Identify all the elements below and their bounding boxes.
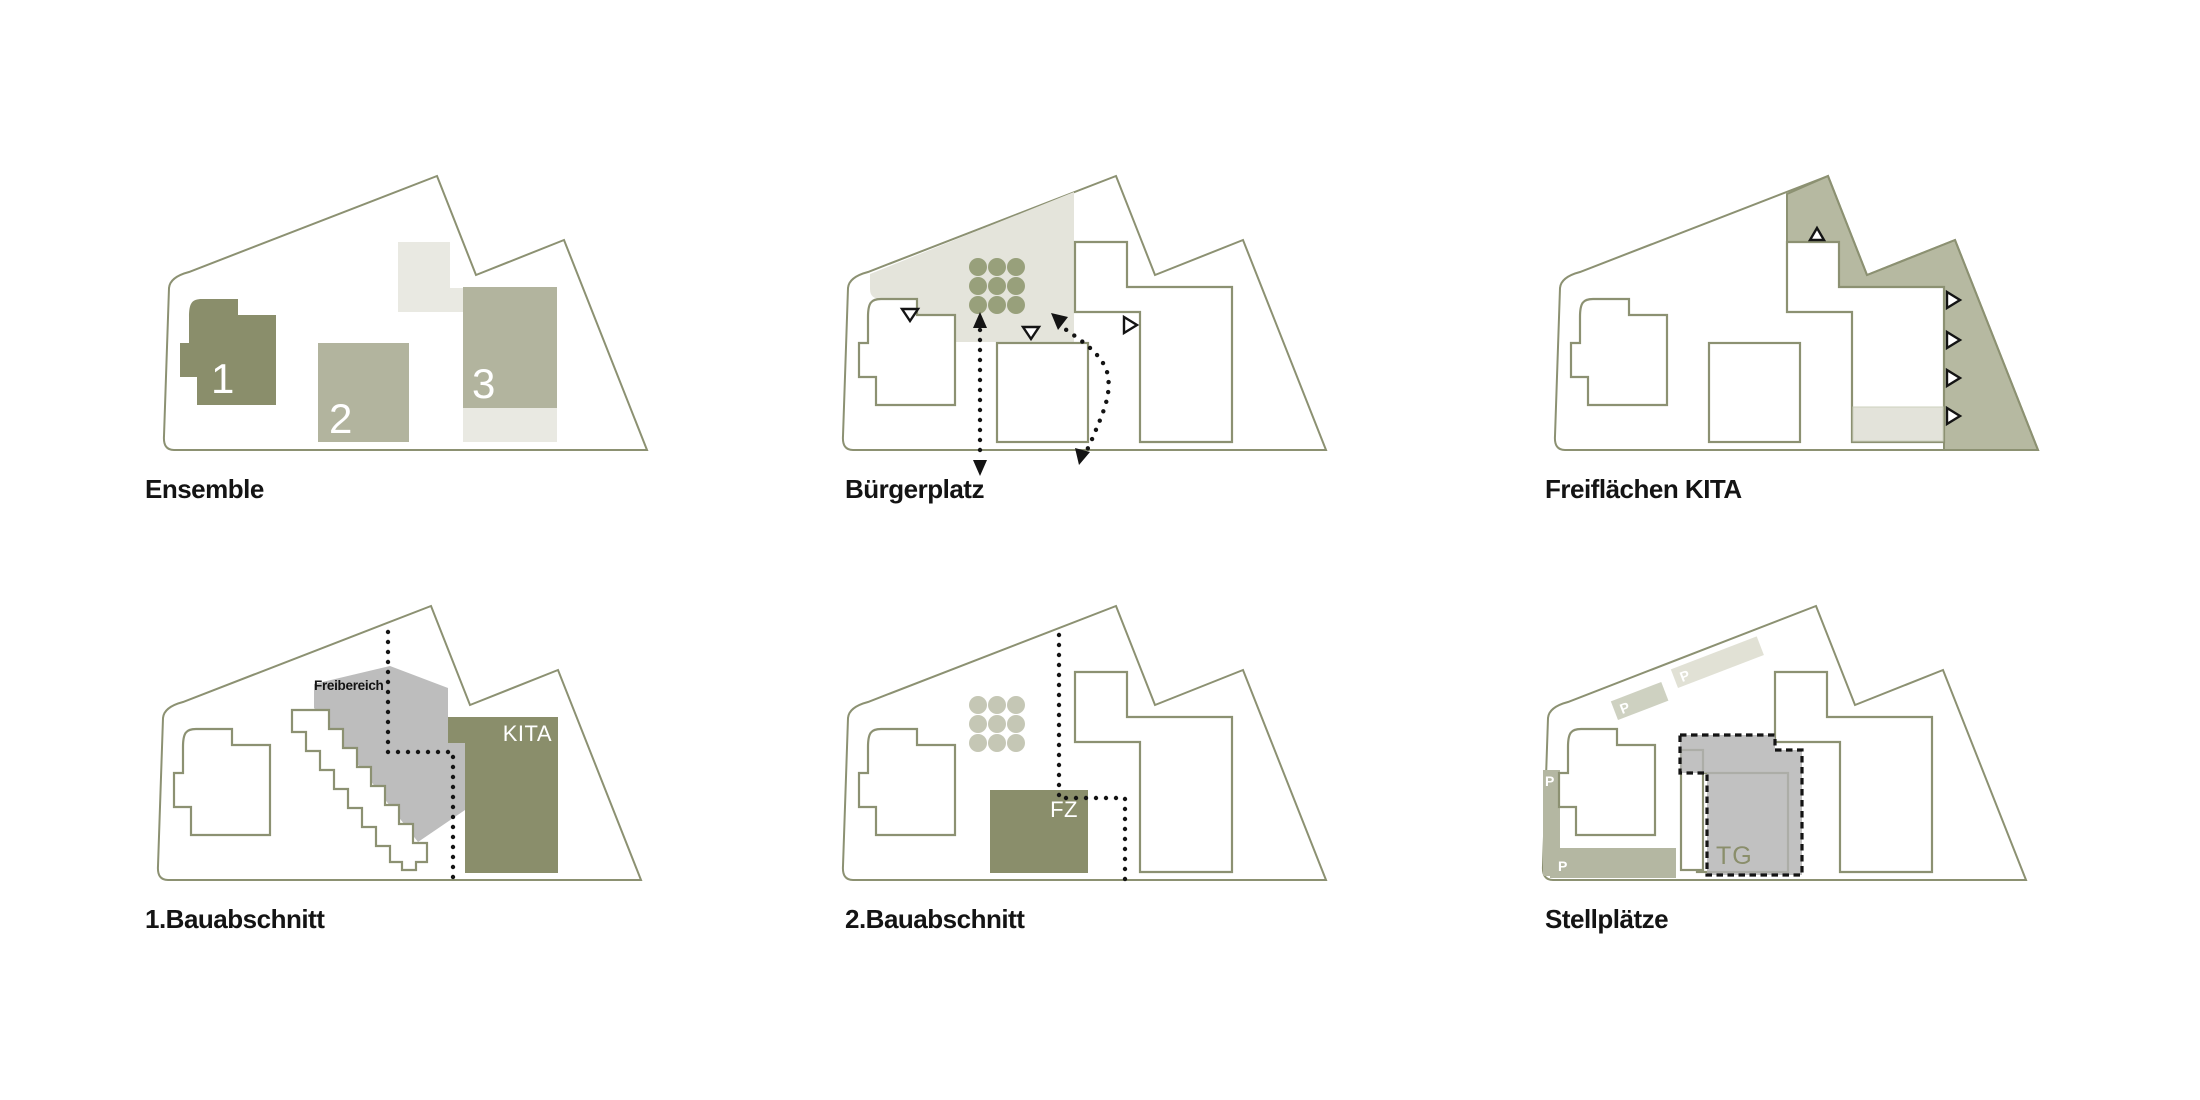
freibereich-label: Freibereich — [314, 678, 384, 693]
diagram-freiflaechen-kita: Freiflächen KITA — [1520, 150, 2140, 530]
light-gray-block-upper — [398, 242, 463, 312]
building-2-outline — [997, 343, 1088, 442]
page-background: 1 2 3 Ensemble Bürgerplatz Freiflächen K… — [0, 0, 2200, 1100]
diagram-stellplaetze: P P P P TG Stellplätze — [1520, 580, 2140, 960]
kita-building-label: KITA — [503, 721, 552, 746]
diagram-title-stellplaetze: Stellplätze — [1545, 904, 1668, 934]
diagram-ensemble: 1 2 3 Ensemble — [120, 150, 740, 530]
building-1-number: 1 — [211, 355, 233, 402]
light-gray-block-lower — [463, 408, 557, 442]
tree-grid — [969, 258, 1025, 314]
building-2-outline — [1709, 343, 1800, 442]
building-2-number: 2 — [329, 395, 351, 442]
building-1-outline — [859, 729, 955, 835]
diagram-buergerplatz: Bürgerplatz — [820, 150, 1440, 530]
building-1-outline — [174, 729, 270, 835]
diagram-title-buergerplatz: Bürgerplatz — [845, 474, 984, 504]
building-1-outline — [1559, 729, 1655, 835]
diagram-title-freiflaechen-kita: Freiflächen KITA — [1545, 474, 1742, 504]
tree-grid — [969, 696, 1025, 752]
light-gray-courtyard-block — [1853, 407, 1943, 441]
tg-garage-label: TG — [1716, 842, 1753, 870]
parking-p-label: P — [1545, 773, 1554, 789]
fz-building-label: FZ — [1050, 797, 1078, 822]
parking-p-label: P — [1558, 858, 1567, 874]
parking-strip-bottom — [1550, 848, 1676, 878]
parking-strip-top-left: P — [1611, 682, 1669, 720]
building-3-number: 3 — [472, 360, 494, 407]
diagram-bauabschnitt-2: FZ 2.Bauabschnitt — [820, 580, 1440, 960]
diagram-title-bauabschnitt-1: 1.Bauabschnitt — [145, 904, 325, 934]
building-1-outline — [1571, 299, 1667, 405]
diagram-title-ensemble: Ensemble — [145, 474, 264, 504]
diagram-title-bauabschnitt-2: 2.Bauabschnitt — [845, 904, 1025, 934]
diagram-bauabschnitt-1: KITA Freibereich 1.Bauabschnitt — [120, 580, 740, 960]
triangle-right-icon — [1124, 317, 1137, 333]
